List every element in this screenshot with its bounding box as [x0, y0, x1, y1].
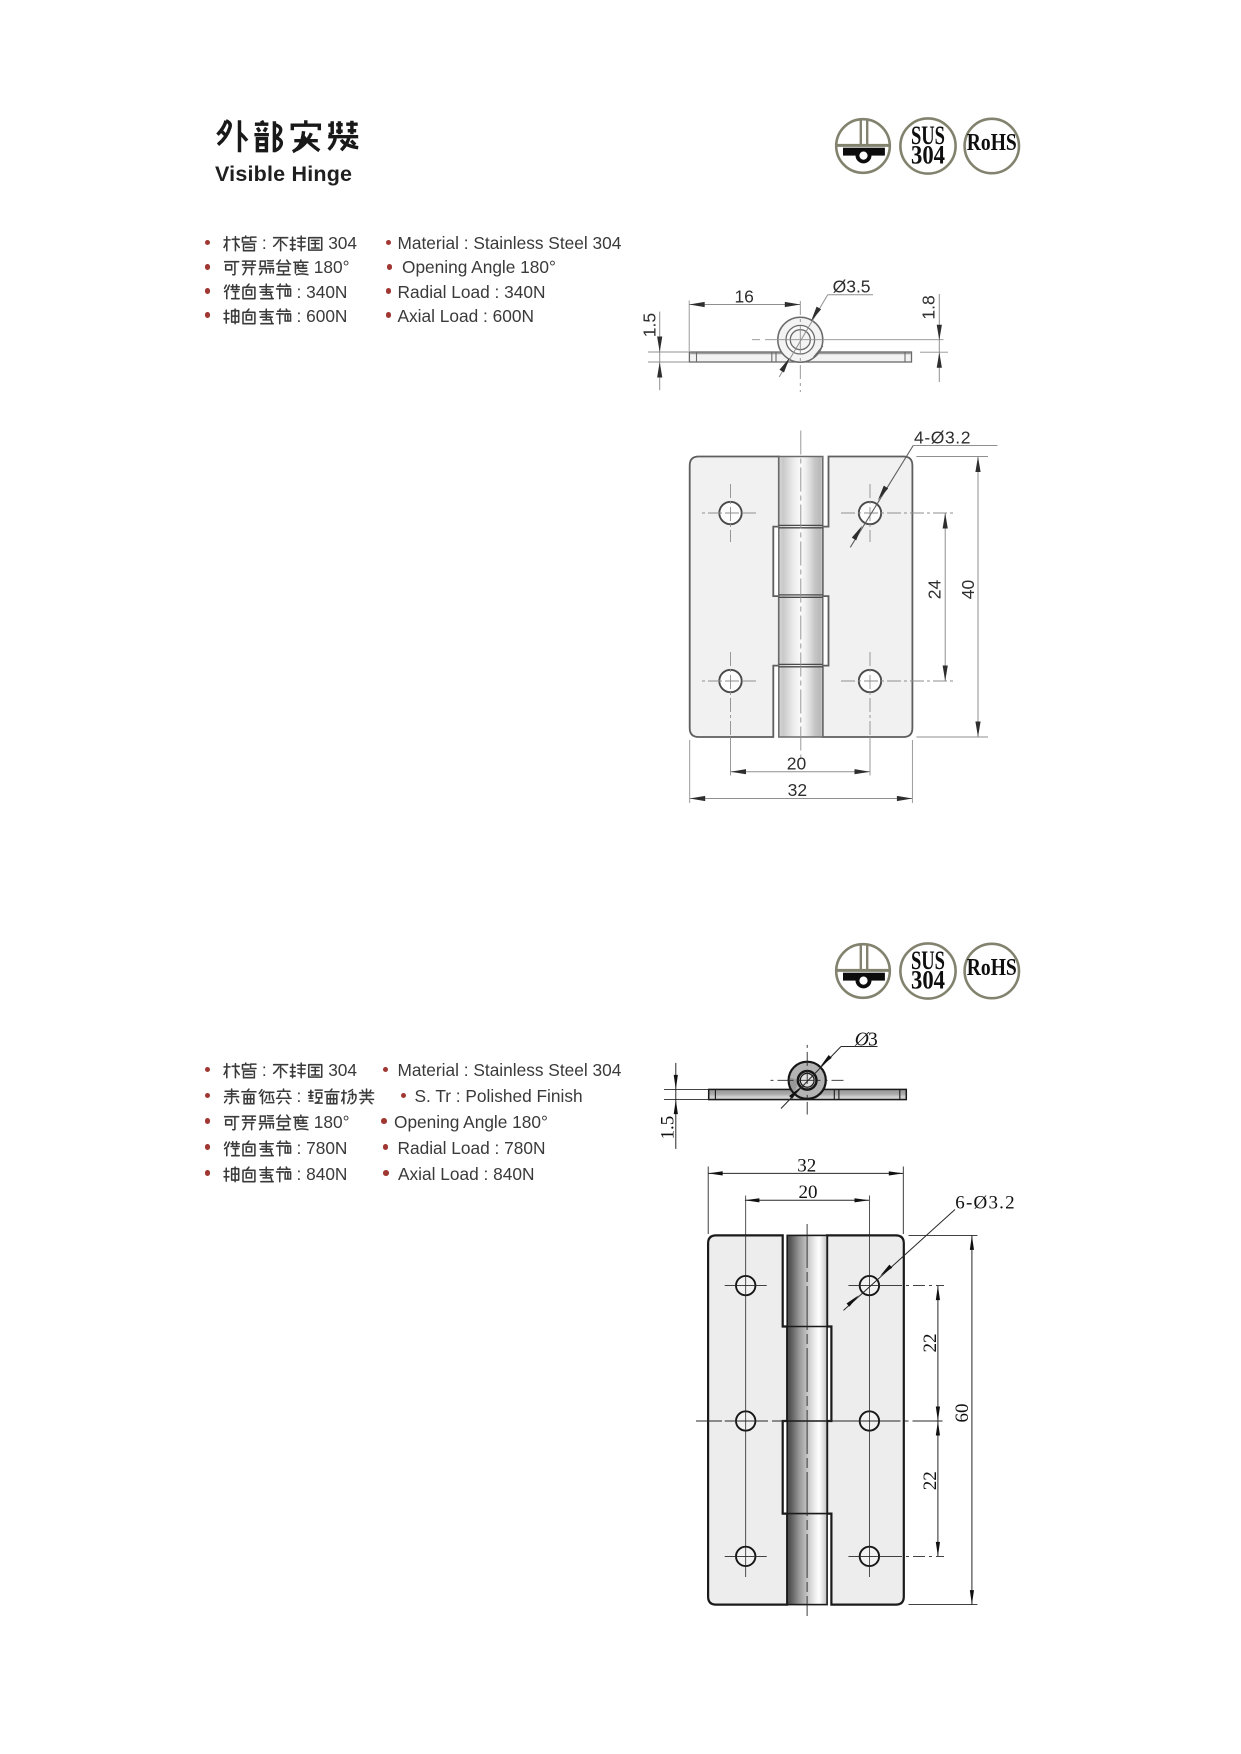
- svg-text:32: 32: [788, 780, 807, 800]
- svg-text:4-Ø3.2: 4-Ø3.2: [914, 428, 971, 448]
- svg-text:1.8: 1.8: [919, 295, 939, 319]
- svg-text:1.5: 1.5: [640, 313, 660, 337]
- svg-text:RoHS: RoHS: [967, 955, 1017, 981]
- svg-text:24: 24: [924, 580, 944, 600]
- svg-text:20: 20: [799, 1182, 818, 1203]
- svg-text:40: 40: [958, 580, 978, 600]
- svg-text:20: 20: [787, 753, 807, 773]
- svg-text:1.5: 1.5: [657, 1116, 678, 1140]
- svg-text:3: 3: [868, 1030, 878, 1051]
- svg-text:60: 60: [952, 1404, 973, 1423]
- svg-text:304: 304: [911, 139, 945, 169]
- svg-text:6-Ø3.2: 6-Ø3.2: [955, 1193, 1016, 1214]
- svg-text:22: 22: [920, 1334, 941, 1353]
- svg-text:RoHS: RoHS: [967, 130, 1017, 156]
- svg-text:Ø3.5: Ø3.5: [833, 276, 871, 296]
- svg-text:16: 16: [734, 286, 753, 306]
- svg-text:32: 32: [797, 1155, 816, 1176]
- svg-text:22: 22: [920, 1471, 941, 1490]
